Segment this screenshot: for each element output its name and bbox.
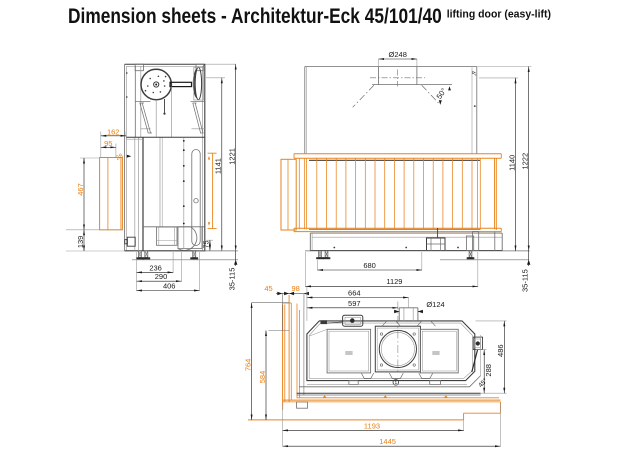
svg-text:1141: 1141	[214, 158, 223, 174]
svg-text:288: 288	[484, 364, 493, 377]
svg-text:290: 290	[155, 272, 168, 281]
svg-text:467: 467	[76, 183, 85, 196]
svg-text:1129: 1129	[386, 277, 402, 286]
svg-text:95: 95	[104, 139, 112, 148]
svg-text:lifting door (easy-lift): lifting door (easy-lift)	[447, 8, 552, 20]
svg-text:45: 45	[264, 284, 272, 293]
svg-text:1445: 1445	[379, 437, 396, 446]
svg-text:597: 597	[348, 299, 361, 308]
svg-text:75: 75	[204, 240, 211, 248]
svg-text:98: 98	[292, 284, 300, 293]
svg-text:Ø124: Ø124	[426, 300, 444, 309]
svg-text:1140: 1140	[507, 155, 516, 171]
svg-text:162: 162	[107, 127, 120, 136]
svg-text:764: 764	[243, 359, 252, 372]
svg-text:1: 1	[394, 380, 397, 386]
svg-text:236: 236	[149, 263, 162, 272]
svg-text:1222: 1222	[521, 153, 530, 170]
svg-text:Dimension sheets - Architektur: Dimension sheets - Architektur-Eck 45/10…	[68, 5, 442, 28]
svg-text:Ø248: Ø248	[389, 50, 407, 59]
svg-text:1221: 1221	[228, 148, 237, 165]
svg-text:680: 680	[363, 261, 376, 270]
svg-text:139: 139	[76, 236, 85, 249]
svg-text:406: 406	[163, 282, 176, 291]
svg-text:35-115: 35-115	[228, 268, 237, 291]
svg-text:584: 584	[258, 371, 267, 384]
svg-text:35-115: 35-115	[521, 269, 530, 292]
svg-text:1193: 1193	[364, 421, 380, 430]
svg-text:664: 664	[348, 288, 361, 297]
svg-text:486: 486	[496, 344, 505, 357]
